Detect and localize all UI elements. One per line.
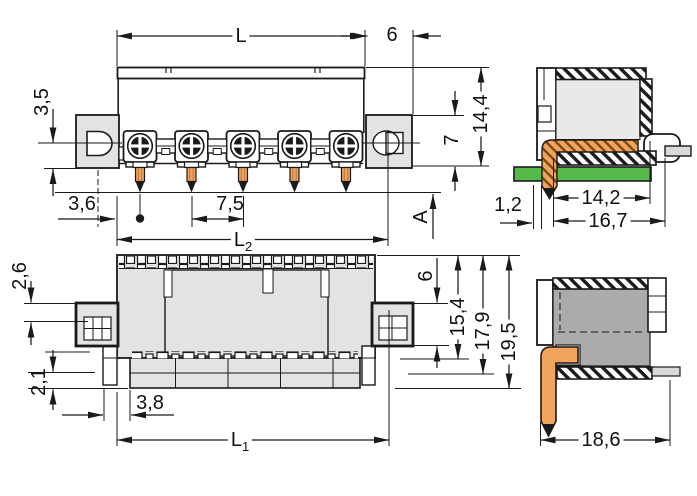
dim-label-L: L (232, 26, 249, 46)
dim-l1-main: L (231, 429, 242, 451)
dim-label-2-6: 2,6 (10, 262, 30, 290)
dim-label-18-6: 18,6 (579, 430, 624, 450)
drawing-geometry (0, 0, 697, 496)
dim-label-6-bottom: 6 (416, 270, 436, 281)
dim-l1-sub: 1 (242, 439, 249, 454)
dim-label-A: A (411, 210, 431, 223)
housing-right-wall (640, 79, 652, 136)
dim-label-14-2: 14,2 (579, 188, 624, 208)
front-top-bar (118, 68, 365, 79)
dim-label-2-1: 2,1 (29, 368, 49, 396)
housing-top-wall-2 (553, 278, 648, 289)
housing-interior (556, 80, 640, 140)
dim-label-7-5: 7,5 (216, 194, 244, 214)
solder-pin (541, 347, 578, 436)
dim-label-3-6: 3,6 (68, 194, 96, 214)
technical-drawing-canvas: L 6 3,5 14,4 7 A 3,6 7,5 L2 1,2 14,2 16,… (0, 0, 697, 496)
datum-point (136, 214, 144, 222)
housing-bottom-wall-2 (557, 367, 652, 379)
dim-label-3-5: 3,5 (32, 88, 52, 116)
dim-label-17-9: 17,9 (473, 309, 493, 354)
dim-label-19-5: 19,5 (499, 320, 519, 365)
dim-label-16-7: 16,7 (586, 211, 631, 231)
dim-l2-sub: 2 (245, 239, 252, 254)
dim-label-1-2: 1,2 (494, 195, 522, 215)
pin-tail (665, 146, 691, 156)
bottom-view (24, 255, 521, 446)
dim-label-L1: L1 (228, 430, 252, 450)
dim-label-14-4: 14,4 (471, 92, 491, 137)
dim-label-15-4: 15,4 (448, 295, 468, 340)
housing-top-wall (556, 68, 646, 80)
housing-bottom-wall (556, 151, 656, 165)
pin-tail-2 (652, 367, 680, 376)
dim-l2-main: L (234, 229, 245, 251)
dim-label-3-8: 3,8 (136, 393, 164, 413)
side-view-bottom (537, 278, 680, 446)
dim-label-L2: L2 (231, 230, 255, 250)
dim-label-6-top: 6 (386, 25, 397, 45)
pcb (514, 167, 651, 181)
dim-label-7: 7 (442, 134, 462, 145)
contact-modules (124, 131, 363, 193)
